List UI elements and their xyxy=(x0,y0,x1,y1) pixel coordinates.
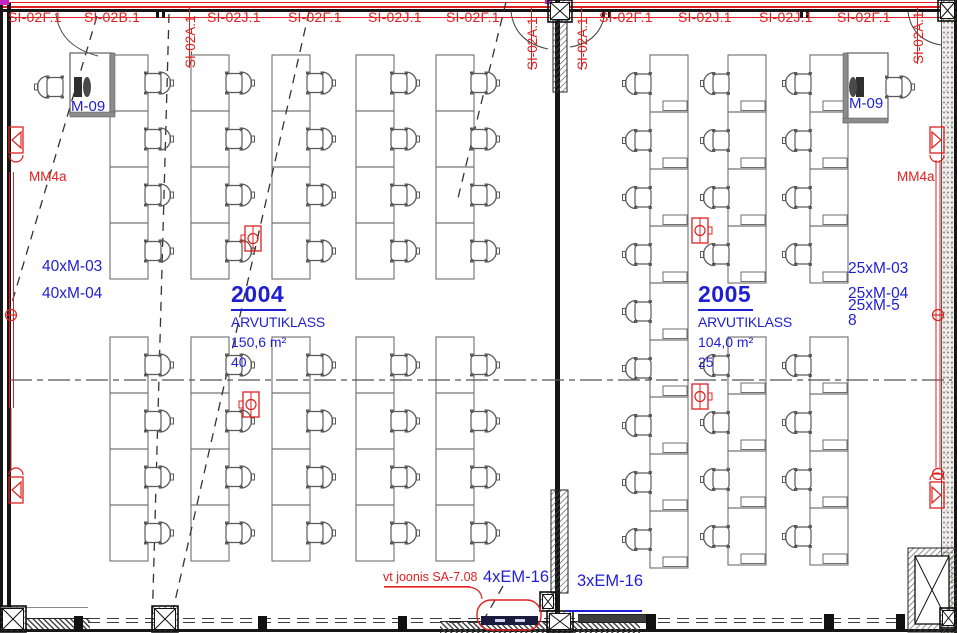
label-3xem16: 3xEM-16 xyxy=(577,572,643,591)
equipment-count-label: 40xM-03 xyxy=(42,258,102,276)
tray-dash xyxy=(515,619,525,622)
desk xyxy=(272,505,310,561)
chair xyxy=(35,76,64,99)
chair xyxy=(225,72,255,95)
chair xyxy=(144,72,174,95)
room-name: ARVUTIKLASS xyxy=(698,314,792,330)
speaker-icon xyxy=(930,127,944,162)
room-seats: 40 xyxy=(231,354,325,370)
desk xyxy=(436,393,474,449)
floor-box-icon xyxy=(692,218,712,243)
duct-label: SI-02F.1 xyxy=(8,9,62,25)
duct-label: SI-02J.1 xyxy=(368,9,422,25)
chair xyxy=(701,186,730,209)
chair xyxy=(623,186,652,209)
chair xyxy=(306,410,336,433)
label-mm4a-right: MM4a xyxy=(897,169,935,184)
duct-label: SI-02B.1 xyxy=(84,9,140,25)
chair xyxy=(390,354,420,377)
em16-leader-line xyxy=(566,610,642,612)
person-icon xyxy=(849,77,857,97)
chair xyxy=(623,72,652,95)
desk-pc-shelf xyxy=(741,383,765,393)
equipment-count-label: 40xM-04 xyxy=(42,285,102,303)
desk xyxy=(272,393,310,449)
chair xyxy=(783,468,812,491)
desk-partition xyxy=(843,118,888,123)
column-x-icon xyxy=(547,611,573,632)
desk xyxy=(272,111,310,167)
desk-pc-shelf xyxy=(741,215,765,225)
chair xyxy=(144,354,174,377)
chair xyxy=(306,184,336,207)
chair xyxy=(701,129,730,152)
chair xyxy=(623,471,652,494)
desk xyxy=(436,167,474,223)
chair xyxy=(390,522,420,545)
desk xyxy=(356,337,394,393)
column-x-icon xyxy=(938,0,957,21)
desk xyxy=(436,337,474,393)
desk xyxy=(110,505,148,561)
duct-label-vertical: SI-02A.1 xyxy=(911,11,926,64)
chair xyxy=(306,466,336,489)
desk-pc-shelf xyxy=(663,443,687,453)
room-seats: 25 xyxy=(698,354,792,370)
chair xyxy=(390,128,420,151)
desk xyxy=(110,449,148,505)
chair xyxy=(783,129,812,152)
desk xyxy=(436,55,474,111)
speaker-icon xyxy=(9,468,23,503)
chair xyxy=(144,522,174,545)
desk-pc-shelf xyxy=(823,158,847,168)
label-m09-left: M-09 xyxy=(71,98,105,115)
duct-label: SI-02J.1 xyxy=(759,9,813,25)
desk xyxy=(272,223,310,279)
chair xyxy=(225,184,255,207)
tray-dash xyxy=(495,619,505,622)
desk xyxy=(191,393,229,449)
duct-label-vertical: SI-02A.1 xyxy=(575,17,590,70)
room-2005-block: 2005 ARVUTIKLASS 104,0 m² 25 xyxy=(698,281,792,370)
desk xyxy=(191,167,229,223)
desk xyxy=(356,505,394,561)
desk xyxy=(191,337,229,393)
chair xyxy=(623,414,652,437)
chair xyxy=(306,72,336,95)
desk xyxy=(110,55,148,111)
chair xyxy=(783,411,812,434)
vt-joonis-underline xyxy=(384,586,470,587)
duct-label: SI-02J.1 xyxy=(207,9,261,25)
desk-pc-shelf xyxy=(663,215,687,225)
desk xyxy=(356,111,394,167)
desk xyxy=(356,55,394,111)
desk xyxy=(436,223,474,279)
desk xyxy=(272,449,310,505)
dashed-section-line xyxy=(458,2,506,198)
desk-pc-shelf xyxy=(663,500,687,510)
room-number: 2004 xyxy=(231,281,286,311)
label-mm4a-left: MM4a xyxy=(29,169,67,184)
desk-pc-shelf xyxy=(741,554,765,564)
desk xyxy=(356,167,394,223)
desk-pc-shelf xyxy=(741,497,765,507)
duct-label: SI-02F.1 xyxy=(288,9,342,25)
chair xyxy=(390,410,420,433)
chair xyxy=(390,72,420,95)
duct-label: SI-02J.1 xyxy=(678,9,732,25)
chair xyxy=(470,184,500,207)
chair xyxy=(470,128,500,151)
chair xyxy=(701,72,730,95)
chair xyxy=(885,76,915,99)
desk-pc-shelf xyxy=(741,158,765,168)
hatched-wall xyxy=(551,490,568,593)
column-x-icon xyxy=(548,0,572,22)
desk xyxy=(436,505,474,561)
monitor-icon xyxy=(74,77,82,97)
chair xyxy=(470,72,500,95)
desk-pc-shelf xyxy=(663,158,687,168)
desk-partition xyxy=(843,53,848,123)
chair xyxy=(144,410,174,433)
desk-pc-shelf xyxy=(823,215,847,225)
desk-pc-shelf xyxy=(663,557,687,567)
room-2004-block: 2004 ARVUTIKLASS 150,6 m² 40 xyxy=(231,281,325,370)
desk xyxy=(191,111,229,167)
desk-pc-shelf xyxy=(823,497,847,507)
monitor-icon xyxy=(856,77,864,97)
chair xyxy=(470,466,500,489)
desk xyxy=(356,223,394,279)
chair xyxy=(623,129,652,152)
chair xyxy=(225,466,255,489)
desk xyxy=(191,223,229,279)
leader-curve xyxy=(384,587,482,599)
desk xyxy=(110,337,148,393)
chair xyxy=(306,522,336,545)
chair xyxy=(470,354,500,377)
room-area: 150,6 m² xyxy=(231,334,325,350)
label-4xem16: 4xEM-16 xyxy=(483,568,549,587)
floor-plan: SI-02F.1SI-02B.1SI-02J.1SI-02F.1SI-02J.1… xyxy=(0,0,957,633)
desk-pc-shelf xyxy=(663,101,687,111)
desk xyxy=(191,505,229,561)
chair xyxy=(701,411,730,434)
chair xyxy=(701,468,730,491)
desk-pc-shelf xyxy=(741,101,765,111)
label-vt-joonis: vt joonis SA-7.08 xyxy=(383,570,478,584)
desk-partition xyxy=(110,53,115,115)
chair xyxy=(144,184,174,207)
duct-label: SI-02F.1 xyxy=(446,9,500,25)
plan-graphics xyxy=(0,0,957,633)
desk xyxy=(110,393,148,449)
chair xyxy=(144,128,174,151)
chair xyxy=(783,72,812,95)
chair xyxy=(783,243,812,266)
chair xyxy=(623,357,652,380)
desk xyxy=(110,223,148,279)
desk-pc-shelf xyxy=(823,440,847,450)
person-icon xyxy=(83,77,91,97)
chair xyxy=(470,410,500,433)
desk xyxy=(356,393,394,449)
cable-tray-element xyxy=(481,616,538,625)
equipment-count-label: 8 xyxy=(848,312,857,330)
chair xyxy=(701,525,730,548)
desk-pc-shelf xyxy=(663,329,687,339)
desk xyxy=(356,449,394,505)
chair xyxy=(225,522,255,545)
hatched-wall xyxy=(553,20,567,92)
desk-pc-shelf xyxy=(663,386,687,396)
chair xyxy=(623,528,652,551)
chair xyxy=(470,240,500,263)
chair xyxy=(144,240,174,263)
chair xyxy=(225,128,255,151)
chair xyxy=(306,128,336,151)
room-number: 2005 xyxy=(698,281,753,311)
duct-label: SI-02F.1 xyxy=(837,9,891,25)
chair xyxy=(390,240,420,263)
room-name: ARVUTIKLASS xyxy=(231,314,325,330)
speaker-icon xyxy=(9,127,23,162)
column-x-icon xyxy=(540,592,556,611)
room-area: 104,0 m² xyxy=(698,334,792,350)
chair xyxy=(144,466,174,489)
chair xyxy=(701,243,730,266)
equipment-count-label: 25xM-03 xyxy=(848,260,908,278)
desk xyxy=(110,167,148,223)
desk xyxy=(191,449,229,505)
desk xyxy=(272,55,310,111)
chair xyxy=(783,525,812,548)
chair xyxy=(623,243,652,266)
chair xyxy=(623,300,652,323)
chair xyxy=(306,240,336,263)
duct-label-vertical: SI-02A.1 xyxy=(183,15,198,68)
column-x-icon xyxy=(940,608,957,628)
duct-label-vertical: SI-02A.1 xyxy=(525,17,540,70)
desk-pc-shelf xyxy=(823,383,847,393)
chair xyxy=(470,522,500,545)
teacher-workstation xyxy=(843,53,915,123)
chair xyxy=(390,466,420,489)
desk-pc-shelf xyxy=(663,272,687,282)
desk-pc-shelf xyxy=(823,272,847,282)
chair xyxy=(225,410,255,433)
chair xyxy=(783,186,812,209)
duct-label: SI-02F.1 xyxy=(599,9,653,25)
desk xyxy=(272,167,310,223)
desk-pc-shelf xyxy=(823,554,847,564)
desk xyxy=(436,449,474,505)
desk xyxy=(110,111,148,167)
column-x-icon xyxy=(0,606,26,632)
floor-box-icon xyxy=(692,384,712,409)
column-x-icon xyxy=(152,606,178,632)
desk-pc-shelf xyxy=(741,440,765,450)
chair xyxy=(390,184,420,207)
label-m09-right: M-09 xyxy=(849,95,883,112)
